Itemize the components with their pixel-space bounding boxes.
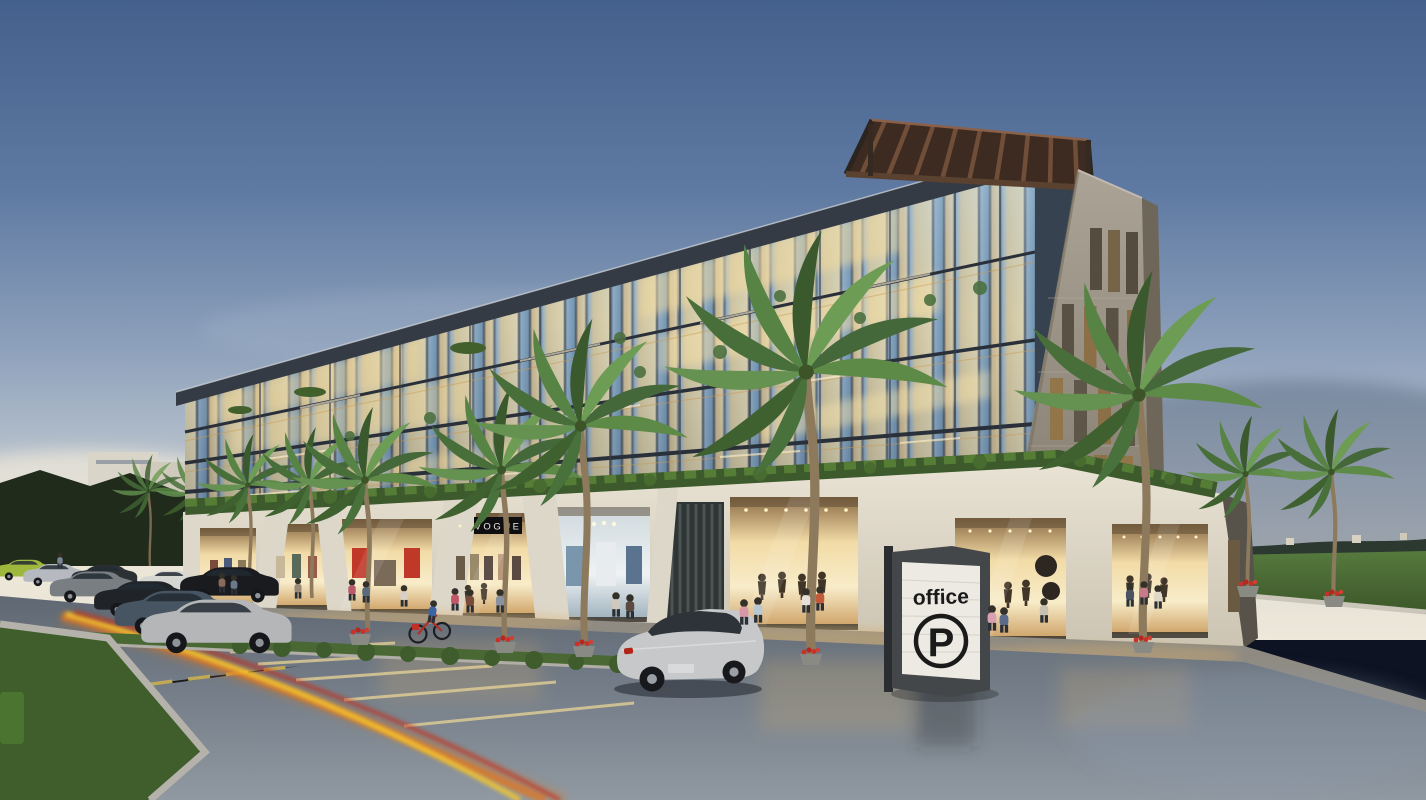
render-canvas: VOGUE bbox=[0, 0, 1426, 800]
hedge-box bbox=[0, 692, 24, 744]
bike-bag bbox=[412, 624, 419, 630]
side-window bbox=[1228, 540, 1240, 612]
sign-post bbox=[884, 546, 893, 692]
sign-letter-p: P bbox=[928, 621, 955, 665]
dusk-building-render: VOGUE bbox=[0, 0, 1426, 800]
sign-word-office: office bbox=[913, 585, 970, 609]
office-parking-sign: office P bbox=[884, 546, 999, 702]
